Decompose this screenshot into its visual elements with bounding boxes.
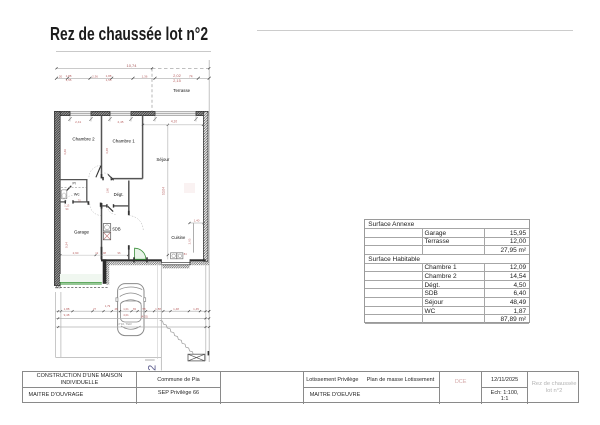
svg-text:94: 94 <box>66 207 69 211</box>
svg-text:12: 12 <box>95 251 98 255</box>
svg-text:4,10: 4,10 <box>171 120 177 124</box>
svg-text:SDB: SDB <box>112 227 121 232</box>
svg-text:2: 2 <box>147 365 159 371</box>
svg-text:Pl: Pl <box>72 182 75 186</box>
svg-text:2,90: 2,90 <box>73 251 79 255</box>
svg-text:Garage: Garage <box>74 230 90 235</box>
svg-text:1,45: 1,45 <box>193 307 199 311</box>
svg-text:83: 83 <box>133 307 137 311</box>
svg-text:1,01: 1,01 <box>123 307 129 311</box>
svg-text:Dégt.: Dégt. <box>114 192 124 197</box>
svg-text:1,36: 1,36 <box>142 74 148 78</box>
svg-text:1,48: 1,48 <box>173 307 179 311</box>
svg-text:1,88: 1,88 <box>155 307 161 311</box>
svg-text:2,45: 2,45 <box>117 120 123 124</box>
svg-text:4,46: 4,46 <box>63 149 67 155</box>
svg-text:74: 74 <box>189 74 193 78</box>
svg-text:10,74: 10,74 <box>126 63 137 68</box>
svg-text:1,79: 1,79 <box>105 304 111 308</box>
svg-text:1,55: 1,55 <box>106 78 112 82</box>
svg-text:Séjour: Séjour <box>156 157 170 162</box>
svg-text:Cuisine: Cuisine <box>171 235 186 240</box>
svg-text:4,48: 4,48 <box>105 148 109 154</box>
svg-text:84: 84 <box>184 252 187 256</box>
svg-text:10,04: 10,04 <box>162 187 166 195</box>
svg-text:1,88: 1,88 <box>64 307 70 311</box>
svg-text:96: 96 <box>118 251 121 255</box>
svg-text:20: 20 <box>59 74 63 78</box>
svg-text:1,13: 1,13 <box>64 203 70 207</box>
svg-text:2,63: 2,63 <box>188 238 192 244</box>
svg-text:2,15: 2,15 <box>173 78 182 83</box>
svg-text:4,01: 4,01 <box>123 313 129 317</box>
svg-text:98: 98 <box>103 251 106 255</box>
svg-text:2,41: 2,41 <box>75 120 81 124</box>
svg-text:Terrasse: Terrasse <box>173 88 190 93</box>
svg-text:58: 58 <box>142 307 146 311</box>
svg-text:1,40: 1,40 <box>194 218 200 222</box>
svg-text:(4,32): (4,32) <box>141 314 148 318</box>
svg-text:1,55: 1,55 <box>66 78 72 82</box>
svg-text:Chambre 2: Chambre 2 <box>72 137 95 142</box>
svg-text:Chambre 1: Chambre 1 <box>112 138 135 143</box>
svg-text:5,34: 5,34 <box>64 242 68 248</box>
svg-text:Wc: Wc <box>74 192 80 197</box>
svg-text:48: 48 <box>114 307 118 311</box>
svg-text:N°16, TER: N°16, TER <box>117 322 132 326</box>
svg-text:2,60: 2,60 <box>106 187 110 193</box>
svg-text:2,36: 2,36 <box>92 74 98 78</box>
svg-text:27: 27 <box>93 307 97 311</box>
svg-text:9,48: 9,48 <box>64 313 70 317</box>
